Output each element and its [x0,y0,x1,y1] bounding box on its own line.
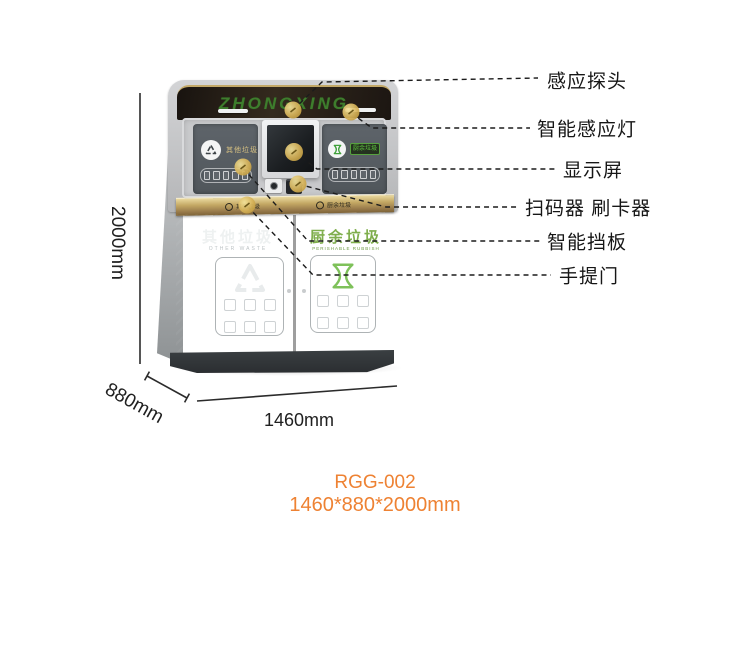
left-door-subtitle: OTHER WASTE [182,246,294,252]
sensor-light-strip-left [218,109,248,113]
callout-label-scanner-card-reader: 扫码器 刷卡器 [525,194,651,221]
door-icon-cell [337,317,349,329]
kitchen-waste-icon [328,261,358,291]
footer-product-info: RGG-002 1460*880*2000mm [0,471,750,517]
head-panel-right-label: 厨余垃圾 [350,143,380,155]
kitchen-waste-badge [328,140,346,158]
left-door-icon-grid [224,299,276,333]
model-number: RGG-002 [0,471,750,494]
other-waste-badge [201,140,221,160]
qr-scanner [265,179,282,193]
dim-line-depth [147,376,187,398]
scanner-lens-icon [270,182,278,190]
right-door-subtitle: PERISHABLE RUBBISH [298,246,394,251]
recycle-ring-icon [316,201,324,209]
door-lock-dot [287,289,291,293]
lift-door-gold-band: 其他垃圾 厨余垃圾 [176,195,394,216]
door-icon-cell [244,299,256,311]
head-panel-left-label: 其他垃圾 [226,145,258,155]
product-annotation-page: ZHONGXING 其他垃圾 [0,0,750,656]
size-spec: 1460*880*2000mm [0,494,750,517]
band-label-right: 厨余垃圾 [316,200,351,210]
head-icon-cell [351,170,357,179]
head-icon-cell [232,171,238,180]
head-right-icon-strip [328,167,380,182]
callout-label-sensor-probe: 感应探头 [547,67,627,94]
door-icon-cell [264,321,276,333]
display-screen [267,125,314,172]
door-icon-cell [244,321,256,333]
door-icon-cell [317,317,329,329]
dimension-height-label: 2000mm [106,203,128,283]
band-label-left: 其他垃圾 [225,201,260,211]
head-icon-cell [360,170,366,179]
head-panel-kitchen-waste: 厨余垃圾 [322,124,387,194]
dimension-width-label: 1460mm [259,410,339,431]
right-door-title: 厨余垃圾 [298,226,394,247]
other-waste-arrow-icon [233,263,267,295]
door-icon-cell [264,299,276,311]
head-left-icon-strip [200,168,252,183]
head-icon-cell [332,170,338,179]
card-reader [286,179,302,194]
band-label-left-text: 其他垃圾 [236,201,260,210]
left-door-panel [215,257,284,336]
band-label-right-text: 厨余垃圾 [327,200,351,209]
door-icon-cell [317,295,329,307]
sensor-light-strip-right [345,108,376,112]
brand-band: ZHONGXING [177,85,391,120]
door-icon-cell [224,299,236,311]
door-icon-cell [357,295,369,307]
callout-label-display-screen: 显示屏 [563,156,623,183]
head-icon-cell [341,170,347,179]
callout-label-smart-baffle: 智能挡板 [547,228,627,255]
machine-base [170,350,394,373]
head-icon-cell [242,171,248,180]
dimension-depth-label: 880mm [97,377,171,431]
right-door-panel [310,255,376,333]
door-icon-cell [357,317,369,329]
other-waste-arrow-icon [205,144,217,156]
head-icon-cell [213,171,219,180]
head-icon-cell [370,170,376,179]
head-icon-cell [204,171,210,180]
door-icon-cell [337,295,349,307]
left-door-title: 其他垃圾 [182,226,294,247]
dim-line-width [197,386,397,401]
door-icon-cell [224,321,236,333]
door-lock-dot [302,289,306,293]
kitchen-waste-icon [332,144,343,155]
callout-label-smart-sensor-light: 智能感应灯 [537,115,637,142]
head-icon-cell [223,171,229,180]
callout-label-lift-door: 手提门 [559,262,619,289]
recycle-ring-icon [225,202,233,210]
right-door-icon-grid [317,295,369,329]
head-panel-other-waste: 其他垃圾 [193,124,258,194]
